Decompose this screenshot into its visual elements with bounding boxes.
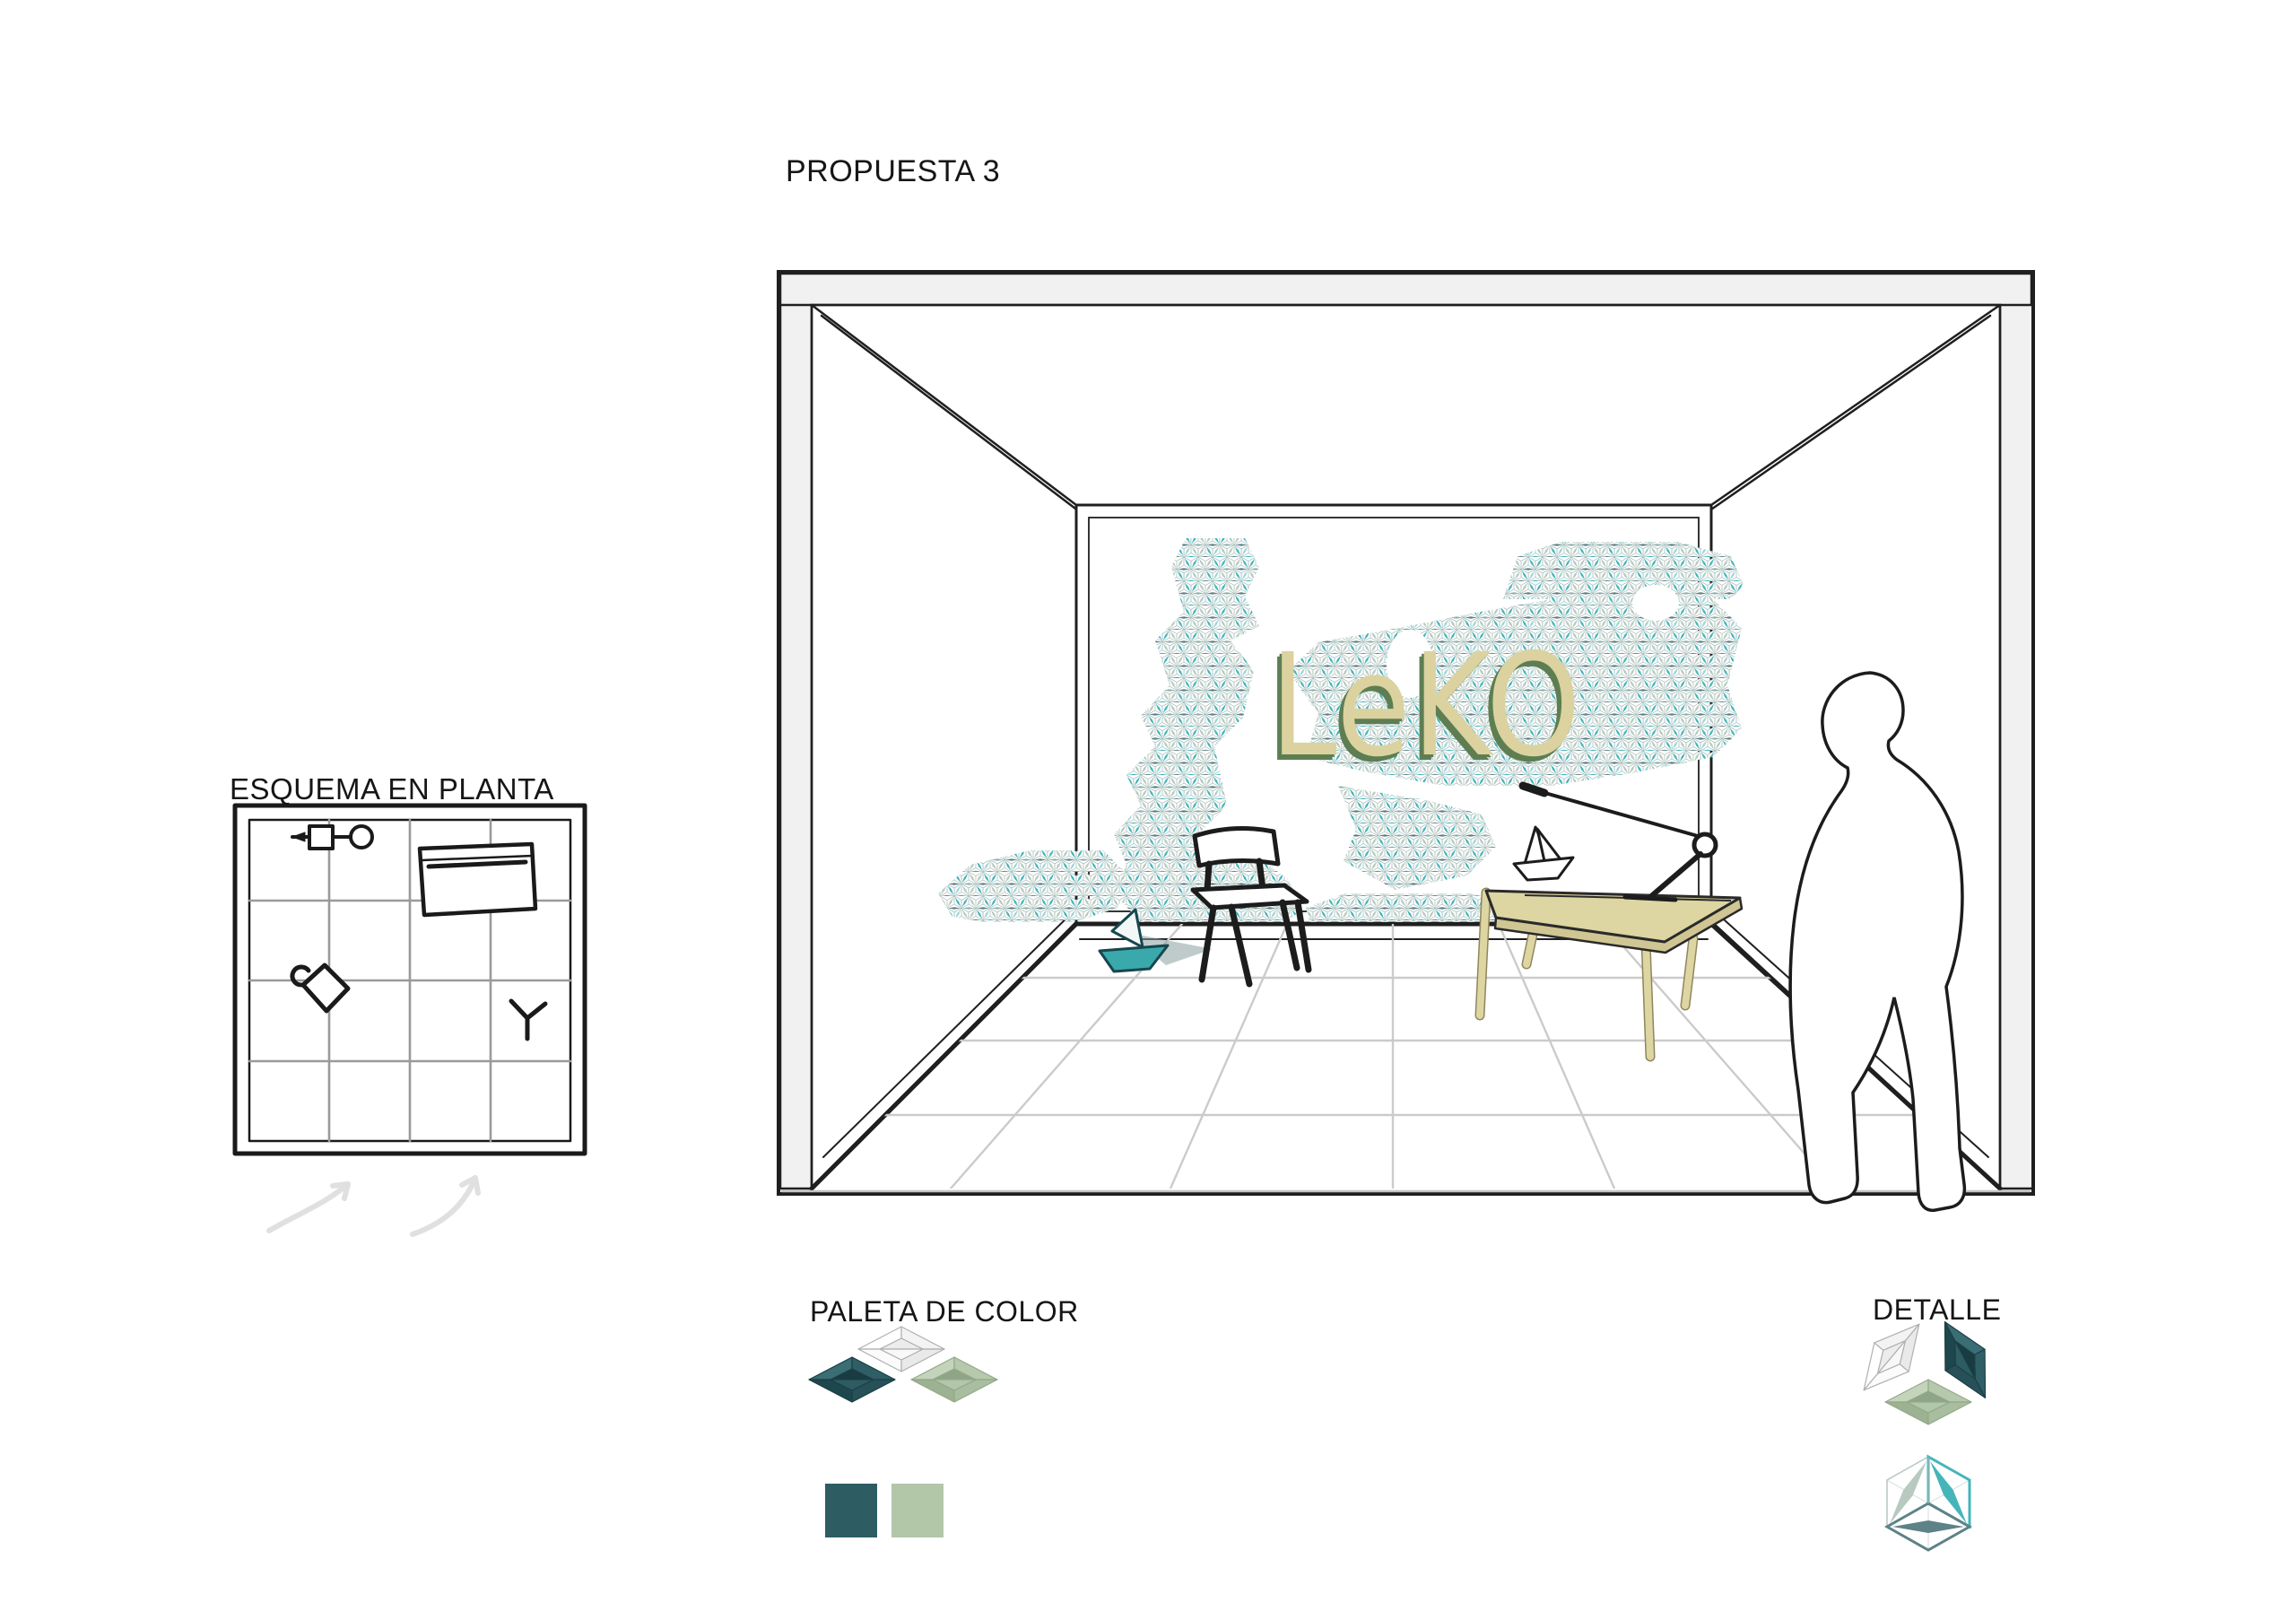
detail-section-label: DETALLE bbox=[1873, 1293, 2001, 1327]
mural-logo-text: LeKO bbox=[1270, 635, 1582, 777]
person-silhouette bbox=[1790, 673, 1964, 1210]
detail-cube bbox=[1887, 1457, 1970, 1550]
scene-drawing bbox=[0, 0, 2296, 1620]
plan-desk-symbol bbox=[420, 844, 535, 915]
palette-section-label: PALETA DE COLOR bbox=[810, 1295, 1079, 1328]
color-swatch-dark-teal bbox=[825, 1484, 877, 1537]
color-swatch-sage-green bbox=[891, 1484, 944, 1537]
page-title: PROPUESTA 3 bbox=[786, 154, 1000, 189]
palette-tiles bbox=[809, 1327, 997, 1402]
detail-tiles bbox=[1847, 1310, 2005, 1424]
proposal-board: PROPUESTA 3 ESQUEMA EN PLANTA LeKO PALET… bbox=[0, 0, 2296, 1620]
floor-plan-drawing bbox=[235, 806, 585, 1234]
plan-entry-arrows bbox=[269, 1178, 478, 1234]
desk bbox=[1480, 891, 1742, 1057]
plan-section-label: ESQUEMA EN PLANTA bbox=[230, 772, 554, 806]
